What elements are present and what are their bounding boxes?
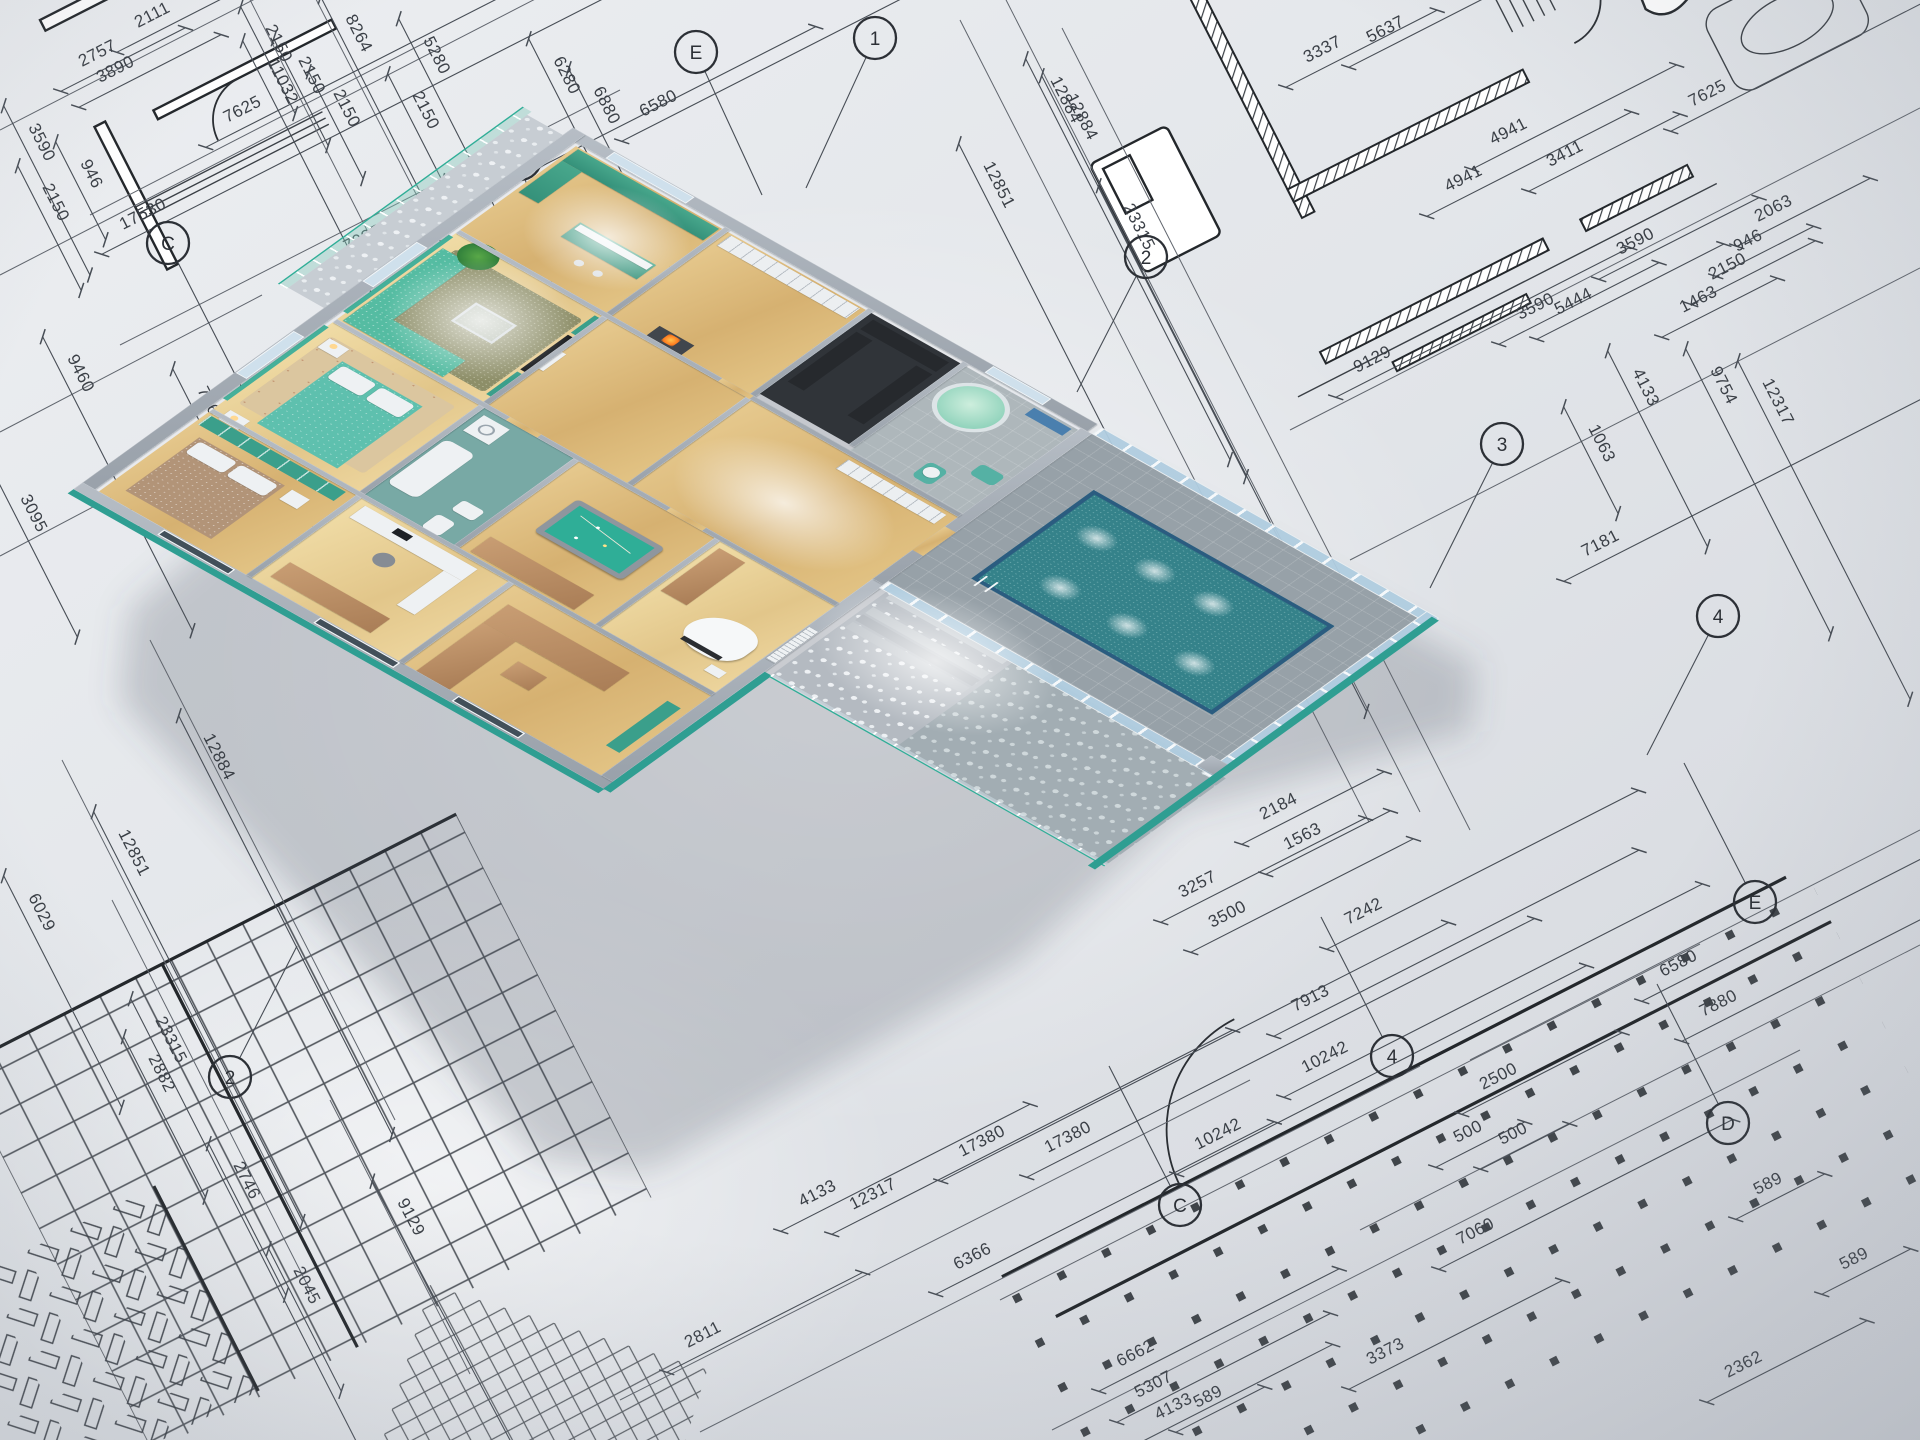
grid-marker-label: 4 — [1387, 1047, 1398, 1068]
grid-marker-label: C — [161, 234, 175, 255]
grid-marker-label: 2 — [225, 1068, 236, 1089]
grid-marker-label: E — [1749, 893, 1762, 914]
grid-marker-label: C — [1173, 1196, 1187, 1217]
grid-marker-label: 1 — [870, 29, 881, 50]
blueprint-sheet: 2111275738907625175307925658056373337494… — [0, 0, 1920, 1440]
grid-marker-label: D — [1721, 1114, 1735, 1135]
blueprint-background: 2111275738907625175307925658056373337494… — [0, 0, 1920, 1440]
grid-marker-label: E — [690, 43, 703, 64]
grid-marker-label: 4 — [1713, 607, 1724, 628]
grid-marker-label: 2 — [1141, 248, 1152, 269]
grid-marker-label: D — [513, 150, 527, 171]
grid-marker-label: 3 — [1497, 435, 1508, 456]
